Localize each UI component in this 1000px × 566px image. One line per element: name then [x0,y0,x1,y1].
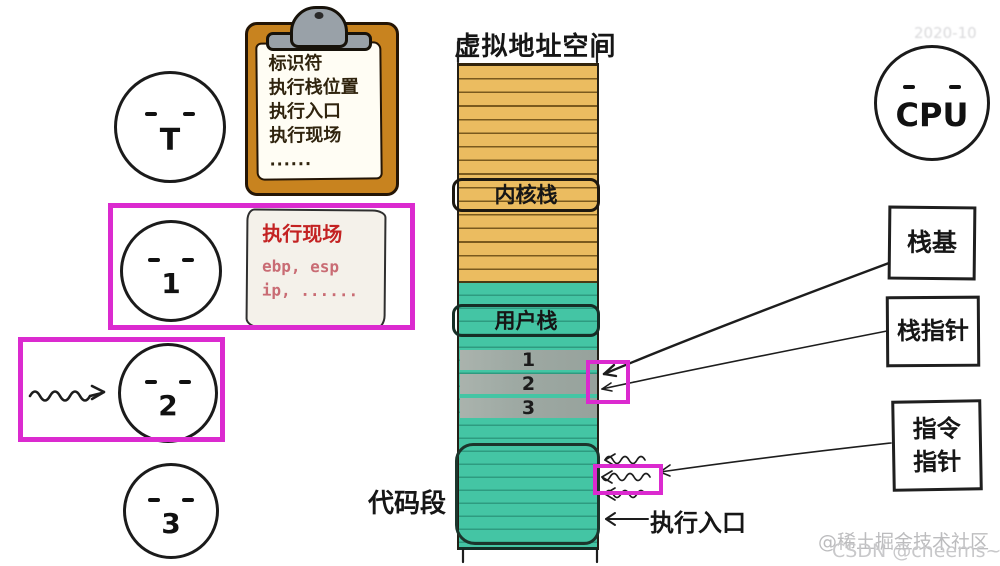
diagram-canvas: T 1 执行现场 ebp, esp ip, ...... 2 3 标识符 执行栈… [0,0,1000,566]
stack-pointer-label: 栈指针 [897,315,969,348]
kernel-region [459,63,597,283]
entry-arrow-icon [606,513,648,525]
face-t-circle: T [114,71,226,183]
instruction-pointer-arrow-icon [660,443,891,476]
face-eyes-icon [877,85,987,89]
stack-frame-row: 3 [460,398,597,418]
face-3-circle: 3 [123,463,219,559]
clipboard-line: 执行现场 [269,123,380,148]
clipboard-line: 标识符 [268,51,379,76]
watermark-juejin: @稀土掘金技术社区 [818,527,989,554]
kernel-stack-box: 内核栈 [452,178,600,212]
stack-base-arrow-icon [604,263,889,376]
face-eyes-icon [126,498,216,502]
code-segment-label: 代码段 [368,483,446,520]
page-title: 虚拟地址空间 [448,26,623,63]
instruction-pointer-label-1: 指令 [912,413,961,446]
highlight-box-context [108,203,415,330]
kernel-stack-label: 内核栈 [495,183,558,207]
register-box-instruction-pointer: 指令 指针 [891,399,983,492]
stack-pointer-arrow-icon [602,331,887,391]
stack-base-label: 栈基 [907,226,957,260]
clipboard-clip-hole-icon [315,12,324,19]
clipboard-paper: 标识符 执行栈位置 执行入口 执行现场 ...... [255,41,382,180]
code-segment-box [455,443,600,545]
user-stack-label: 用户栈 [495,309,558,333]
watermark-top: 2020-10 [914,24,977,42]
face-t-label: T [117,123,223,158]
face-eyes-icon [117,112,223,116]
clipboard-line: ...... [269,147,380,172]
entry-label: 执行入口 [650,503,746,538]
cpu-label: CPU [877,96,987,134]
cpu-circle: CPU [874,45,990,161]
clipboard-line: 执行栈位置 [269,75,380,100]
stack-frame-row: 2 [460,374,597,394]
register-box-stack-pointer: 栈指针 [886,296,980,368]
task-struct-clipboard: 标识符 执行栈位置 执行入口 执行现场 ...... [245,6,393,190]
face-3-label: 3 [126,507,216,540]
watermark-csdn: CSDN @cheems~ [832,540,1000,562]
clipboard-line: 执行入口 [269,99,380,124]
register-box-stack-base: 栈基 [888,206,977,281]
highlight-box-instruction [593,464,663,495]
stack-frame-row: 1 [460,350,597,370]
user-stack-box: 用户栈 [452,304,600,337]
highlight-box-ready [18,337,225,442]
highlight-box-stack-pointers [586,360,630,404]
instruction-pointer-label-2: 指针 [913,445,962,478]
